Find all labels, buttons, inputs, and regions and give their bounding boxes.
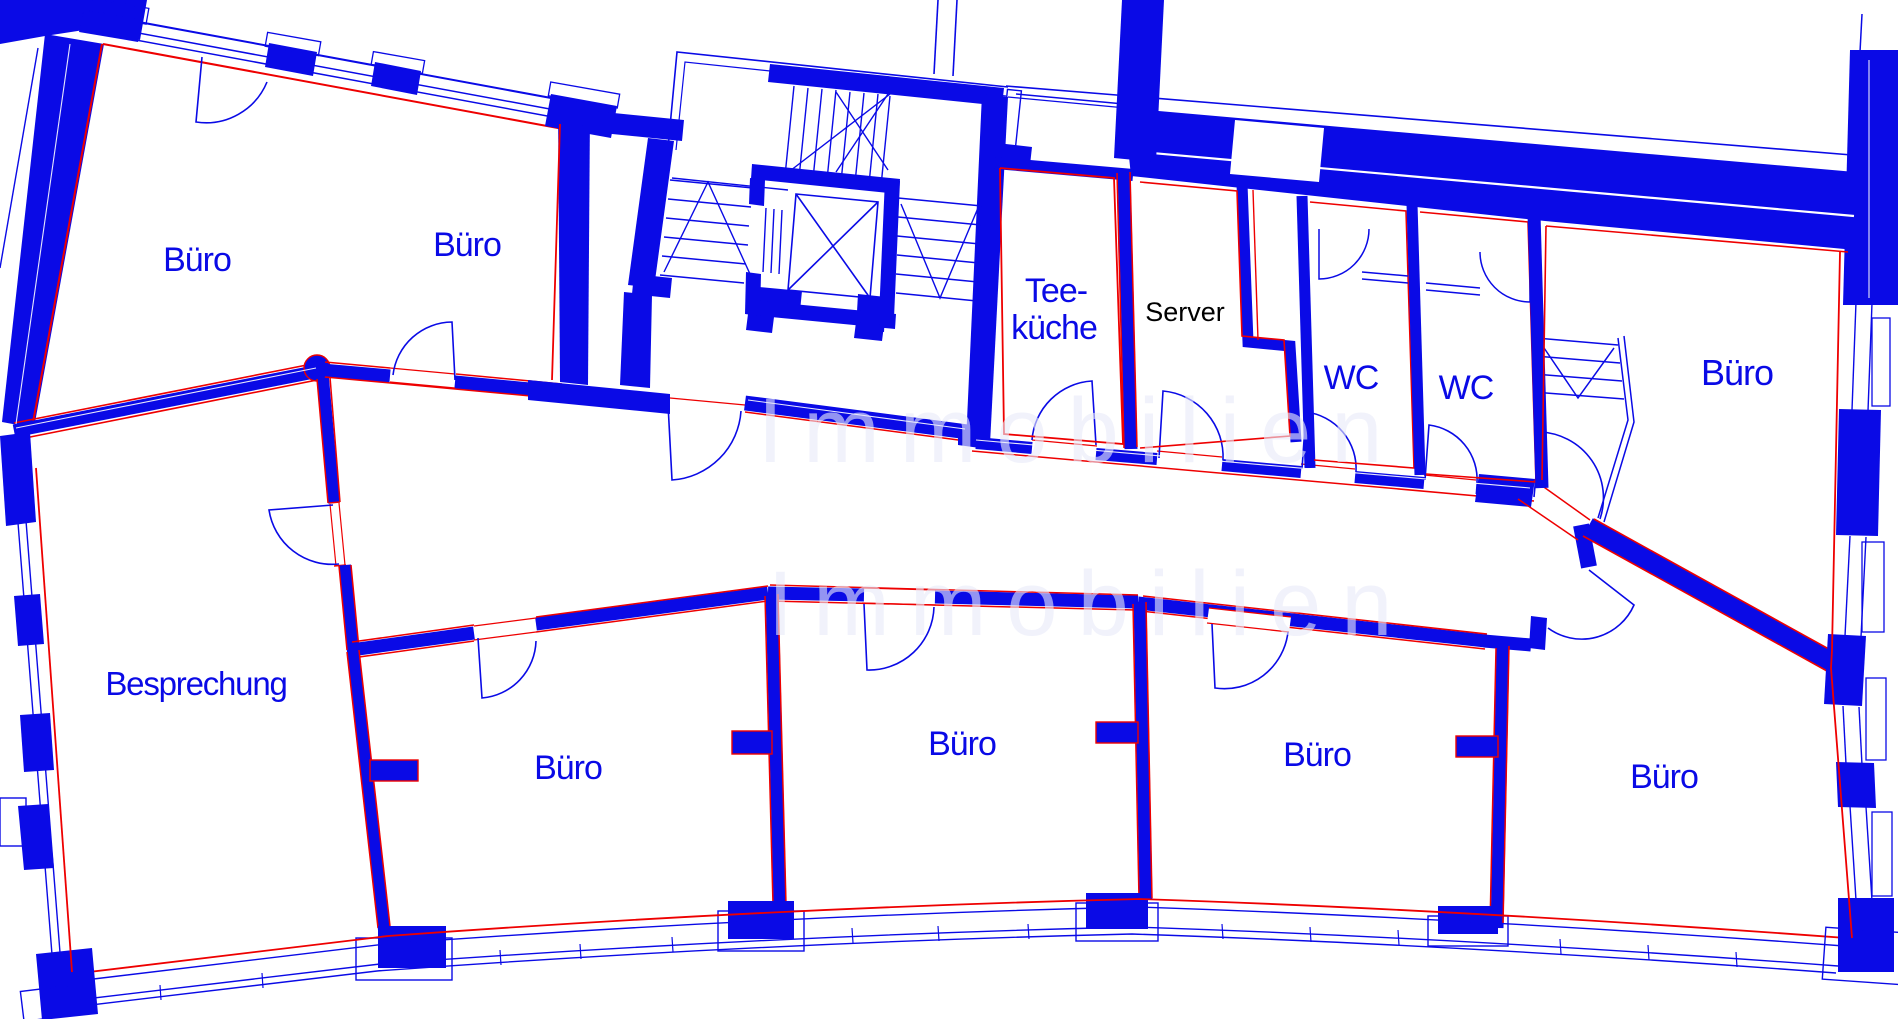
svg-text:Server: Server	[1145, 297, 1225, 327]
svg-text:Büro: Büro	[433, 226, 501, 264]
svg-text:Büro: Büro	[534, 749, 602, 787]
svg-text:Immobilien: Immobilien	[758, 380, 1403, 482]
svg-text:WC: WC	[1324, 359, 1379, 397]
svg-text:küche: küche	[1011, 309, 1097, 347]
svg-text:Immobilien: Immobilien	[768, 553, 1413, 655]
svg-text:Büro: Büro	[163, 241, 231, 279]
svg-text:Büro: Büro	[1283, 736, 1351, 774]
svg-text:Büro: Büro	[928, 725, 996, 763]
svg-text:Besprechung: Besprechung	[105, 665, 286, 702]
svg-text:Büro: Büro	[1630, 758, 1698, 796]
svg-text:WC: WC	[1439, 369, 1494, 407]
svg-text:Büro: Büro	[1701, 352, 1773, 393]
svg-text:Tee-: Tee-	[1025, 272, 1087, 310]
